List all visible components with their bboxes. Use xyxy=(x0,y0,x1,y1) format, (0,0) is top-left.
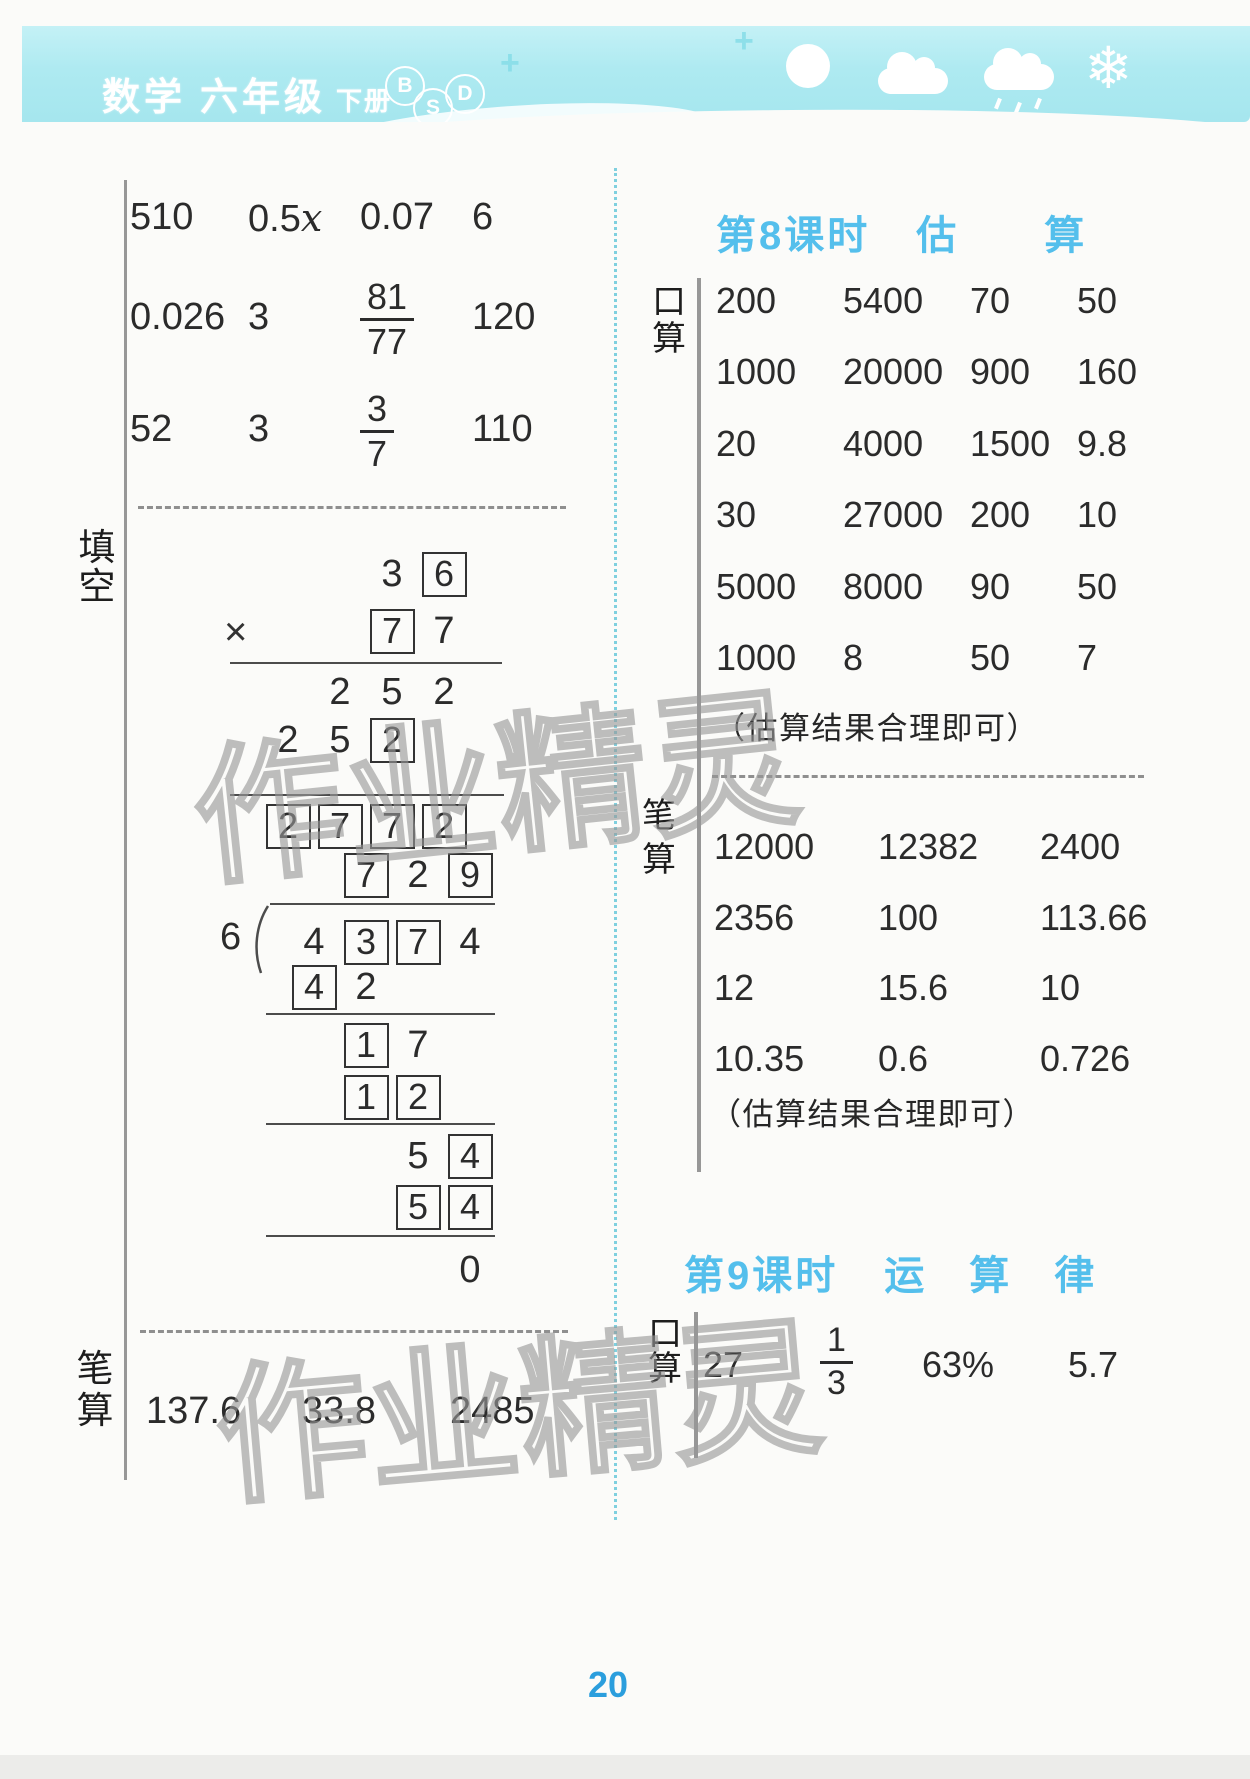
value-cell: 5 xyxy=(392,1132,444,1180)
answer-row: 100020000900160 xyxy=(716,351,1177,393)
answer-row: 0.02638177120 xyxy=(130,296,535,381)
division-vinculum xyxy=(270,903,495,905)
division-bracket xyxy=(248,905,270,975)
value-cell: 2 xyxy=(262,802,314,850)
value-cell: 1 xyxy=(340,1073,392,1121)
oral-calc-label: 口算 xyxy=(650,284,688,358)
heading-char: 律 xyxy=(1054,1254,1094,1298)
answer-box: 3 xyxy=(344,920,389,965)
right-section-rule xyxy=(697,278,701,1172)
value-cell: 7 xyxy=(392,1021,444,1069)
lesson9-section-rule xyxy=(694,1312,698,1458)
estimation-note: （估算结果合理即可） xyxy=(710,1089,1035,1134)
value-cell: 2 xyxy=(392,1073,444,1121)
page-number: 20 xyxy=(558,1664,658,1706)
answer-box: 7 xyxy=(318,804,363,849)
heading-char: 算 xyxy=(969,1254,1009,1298)
value-cell: 200 xyxy=(716,280,843,322)
value-cell: 12382 xyxy=(878,826,1040,868)
value-cell: 2 xyxy=(262,716,314,764)
lesson-number-label: 第9课时 xyxy=(684,1243,838,1301)
value-cell: 1000 xyxy=(716,637,843,679)
value-cell: 8177 xyxy=(360,296,472,381)
answer-box: 1 xyxy=(344,1075,389,1120)
multiplication-row: 252 xyxy=(262,716,470,764)
lesson8-heading: 第8课时 估算 xyxy=(716,203,1084,261)
answer-box: 2 xyxy=(422,804,467,849)
book-title: 数学 六年级 下册 xyxy=(102,66,392,121)
value-cell xyxy=(288,1246,340,1294)
value-cell: 6 xyxy=(418,550,470,598)
multiplication-row: 2772 xyxy=(262,802,470,850)
value-cell: 0.726 xyxy=(1040,1038,1180,1080)
header-band: + + ❄ 数学 六年级 下册 B S D xyxy=(22,26,1250,122)
fill-blank-label: 填空 xyxy=(76,528,118,606)
value-cell: 1 xyxy=(340,1021,392,1069)
value-cell xyxy=(314,550,366,598)
value-cell xyxy=(288,1073,340,1121)
workbook-page: + + ❄ 数学 六年级 下册 B S D 5100.5x0.076 0.026… xyxy=(0,0,1250,1779)
value-cell: 10.35 xyxy=(714,1038,878,1080)
value-cell: 20 xyxy=(716,423,843,465)
value-cell: 900 xyxy=(970,351,1077,393)
snowflake-icon: ❄ xyxy=(1084,34,1133,102)
value-cell xyxy=(340,1183,392,1231)
value-cell: 7 xyxy=(418,607,470,655)
value-cell: 10 xyxy=(1040,967,1180,1009)
value-cell xyxy=(392,963,444,1011)
written-calc-label: 笔算 xyxy=(74,1348,116,1432)
value-cell: 4 xyxy=(444,1132,496,1180)
value-cell xyxy=(444,1021,496,1069)
oral-calc-label: 口算 xyxy=(646,1317,684,1387)
answer-row: 2356100113.66 xyxy=(714,897,1180,939)
value-cell: 0 xyxy=(444,1246,496,1294)
value-cell: 5 xyxy=(392,1183,444,1231)
value-cell xyxy=(262,668,314,716)
answer-row: 20400015009.8 xyxy=(716,423,1177,465)
answer-row: 137.633.82485 xyxy=(146,1390,590,1433)
value-cell: 2 xyxy=(392,851,444,899)
answer-row: 52337110 xyxy=(130,408,533,493)
division-work-row: 42 xyxy=(288,963,496,1011)
value-cell: 52 xyxy=(130,408,248,451)
publisher-logo: B S D xyxy=(385,64,515,122)
value-cell: 4000 xyxy=(843,423,970,465)
raindrop-icon xyxy=(994,98,1001,110)
value-cell: 5400 xyxy=(843,280,970,322)
value-cell: 12000 xyxy=(714,826,878,868)
answer-box: 7 xyxy=(396,920,441,965)
sun-icon xyxy=(786,44,830,88)
value-cell xyxy=(444,963,496,1011)
value-cell: 5000 xyxy=(716,566,843,608)
answer-row: 302700020010 xyxy=(716,494,1177,536)
value-cell xyxy=(262,607,314,655)
answer-box: 7 xyxy=(344,853,389,898)
value-cell: 113.66 xyxy=(1040,897,1180,939)
title-subject: 数学 xyxy=(102,66,186,121)
value-cell: 2 xyxy=(314,668,366,716)
title-grade: 六年级 xyxy=(200,66,326,121)
rain-cloud-icon xyxy=(984,64,1054,90)
value-cell: 7 xyxy=(340,851,392,899)
value-cell: 200 xyxy=(970,494,1077,536)
logo-letter: D xyxy=(445,74,485,114)
multiplication-row: 36 xyxy=(262,550,470,598)
answer-row: 12000123822400 xyxy=(714,826,1180,868)
value-cell xyxy=(288,1021,340,1069)
value-cell: 7 xyxy=(1077,637,1177,679)
left-section-rule xyxy=(124,180,127,1480)
heading-char: 算 xyxy=(1044,214,1084,258)
value-cell: 3 xyxy=(248,296,360,339)
value-cell: 7 xyxy=(366,802,418,850)
column-divider xyxy=(614,168,617,1520)
value-cell: 7 xyxy=(366,607,418,655)
value-cell: 0.026 xyxy=(130,296,248,339)
value-cell: 160 xyxy=(1077,351,1177,393)
value-cell: 7 xyxy=(392,918,444,966)
value-cell xyxy=(288,1132,340,1180)
value-cell: 4 xyxy=(444,918,496,966)
division-remainder-row: 0 xyxy=(288,1246,496,1294)
value-cell: 100 xyxy=(878,897,1040,939)
answer-box: 4 xyxy=(448,1185,493,1230)
division-rule xyxy=(266,1013,495,1015)
value-cell: 70 xyxy=(970,280,1077,322)
value-cell xyxy=(288,851,340,899)
value-cell xyxy=(262,550,314,598)
answer-box: 6 xyxy=(422,552,467,597)
section-dashed-divider xyxy=(140,1330,568,1333)
section-dashed-divider xyxy=(138,506,566,509)
value-cell xyxy=(418,716,470,764)
value-cell: 37 xyxy=(360,408,472,493)
multiplication-rule xyxy=(230,794,504,796)
answer-box: 4 xyxy=(292,965,337,1010)
estimation-note: （估算结果合理即可） xyxy=(714,703,1039,748)
multiplication-sign: × xyxy=(224,610,247,655)
multiplication-rule xyxy=(230,662,502,664)
value-cell: 50 xyxy=(1077,280,1177,322)
lesson-number-label: 第8课时 xyxy=(716,203,870,261)
value-cell: 0.6 xyxy=(878,1038,1040,1080)
value-cell: 9 xyxy=(444,851,496,899)
answer-row: 20054007050 xyxy=(716,280,1177,322)
division-work-row: 12 xyxy=(288,1073,496,1121)
value-cell: 90 xyxy=(970,566,1077,608)
answer-box: 2 xyxy=(266,804,311,849)
lesson9-heading: 第9课时 运算律 xyxy=(684,1243,1094,1301)
division-rule xyxy=(266,1235,495,1237)
value-cell xyxy=(340,1246,392,1294)
value-cell: 2485 xyxy=(450,1390,590,1433)
value-cell: 7 xyxy=(314,802,366,850)
cloud-icon xyxy=(878,68,948,94)
value-cell: 1500 xyxy=(970,423,1077,465)
answer-row: 5100.5x0.076 xyxy=(130,196,493,241)
division-dividend-row: 4374 xyxy=(288,918,496,966)
variable-symbol: x xyxy=(301,196,322,240)
value-cell: 5 xyxy=(366,668,418,716)
value-cell: 0.5x xyxy=(248,196,360,241)
value-cell: 4 xyxy=(444,1183,496,1231)
value-cell: 2 xyxy=(340,963,392,1011)
answer-box: 5 xyxy=(396,1185,441,1230)
heading-char: 运 xyxy=(884,1254,924,1298)
value-cell: 9.8 xyxy=(1077,423,1177,465)
value-cell: 8 xyxy=(843,637,970,679)
answer-row: 1215.610 xyxy=(714,967,1180,1009)
multiplication-row: 77 xyxy=(262,607,470,655)
division-work-row: 17 xyxy=(288,1021,496,1069)
division-rule xyxy=(266,1123,495,1125)
value-cell: 510 xyxy=(130,196,248,239)
value-cell: 8000 xyxy=(843,566,970,608)
value-cell: 6 xyxy=(472,196,493,239)
value-cell: 27000 xyxy=(843,494,970,536)
value-cell: 4 xyxy=(288,918,340,966)
written-calc-label: 笔算 xyxy=(640,794,678,882)
value-cell: 3 xyxy=(248,408,360,451)
title-volume: 下册 xyxy=(336,81,392,118)
answer-box: 2 xyxy=(396,1075,441,1120)
value-cell: 5.7 xyxy=(1068,1344,1118,1428)
value-cell: 0.07 xyxy=(360,196,472,239)
value-cell: 12 xyxy=(714,967,878,1009)
value-cell: 120 xyxy=(472,296,535,339)
value-cell: 63% xyxy=(922,1344,1068,1428)
value-cell: 33.8 xyxy=(302,1390,450,1433)
value-cell: 10 xyxy=(1077,494,1177,536)
division-quotient-row: 729 xyxy=(288,851,496,899)
value-cell xyxy=(288,1183,340,1231)
answer-box: 7 xyxy=(370,609,415,654)
fraction-value: 13 xyxy=(820,1323,853,1402)
division-divisor: 6 xyxy=(220,916,241,959)
value-cell: 50 xyxy=(970,637,1077,679)
value-cell: 137.6 xyxy=(146,1390,302,1433)
section-dashed-divider xyxy=(712,775,1144,778)
division-work-row: 54 xyxy=(288,1183,496,1231)
value-cell: 2356 xyxy=(714,897,878,939)
value-cell xyxy=(340,1132,392,1180)
multiplication-row: 252 xyxy=(262,668,470,716)
value-cell: 27 xyxy=(703,1344,820,1428)
answer-row: 10.350.60.726 xyxy=(714,1038,1180,1080)
value-cell: 1000 xyxy=(716,351,843,393)
value-cell: 15.6 xyxy=(878,967,1040,1009)
answer-box: 4 xyxy=(448,1134,493,1179)
value-cell xyxy=(392,1246,444,1294)
value-cell: 4 xyxy=(288,963,340,1011)
fraction-value: 8177 xyxy=(360,278,414,361)
value-cell: 2 xyxy=(418,668,470,716)
value-cell: 13 xyxy=(820,1344,922,1428)
answer-box: 2 xyxy=(370,718,415,763)
page-bottom-edge xyxy=(0,1755,1250,1779)
value-cell: 3 xyxy=(340,918,392,966)
answer-row: 500080009050 xyxy=(716,566,1177,608)
answer-row: 10008507 xyxy=(716,637,1177,679)
lesson9-answer-row: 271363%5.7 xyxy=(703,1344,1118,1428)
answer-box: 1 xyxy=(344,1023,389,1068)
division-work-row: 54 xyxy=(288,1132,496,1180)
value-cell: 2400 xyxy=(1040,826,1180,868)
value-cell: 3 xyxy=(366,550,418,598)
answer-box: 7 xyxy=(370,804,415,849)
value-cell: 2 xyxy=(366,716,418,764)
value-cell xyxy=(444,1073,496,1121)
value-cell: 5 xyxy=(314,716,366,764)
heading-char: 估 xyxy=(916,214,956,258)
value-cell: 50 xyxy=(1077,566,1177,608)
value-cell: 2 xyxy=(418,802,470,850)
plus-decoration-icon: + xyxy=(734,26,754,61)
fraction-value: 37 xyxy=(360,390,394,473)
raindrop-icon xyxy=(1034,98,1041,110)
answer-box: 9 xyxy=(448,853,493,898)
value-cell: 30 xyxy=(716,494,843,536)
value-cell: 20000 xyxy=(843,351,970,393)
value-cell: 110 xyxy=(472,408,533,451)
value-cell xyxy=(314,607,366,655)
